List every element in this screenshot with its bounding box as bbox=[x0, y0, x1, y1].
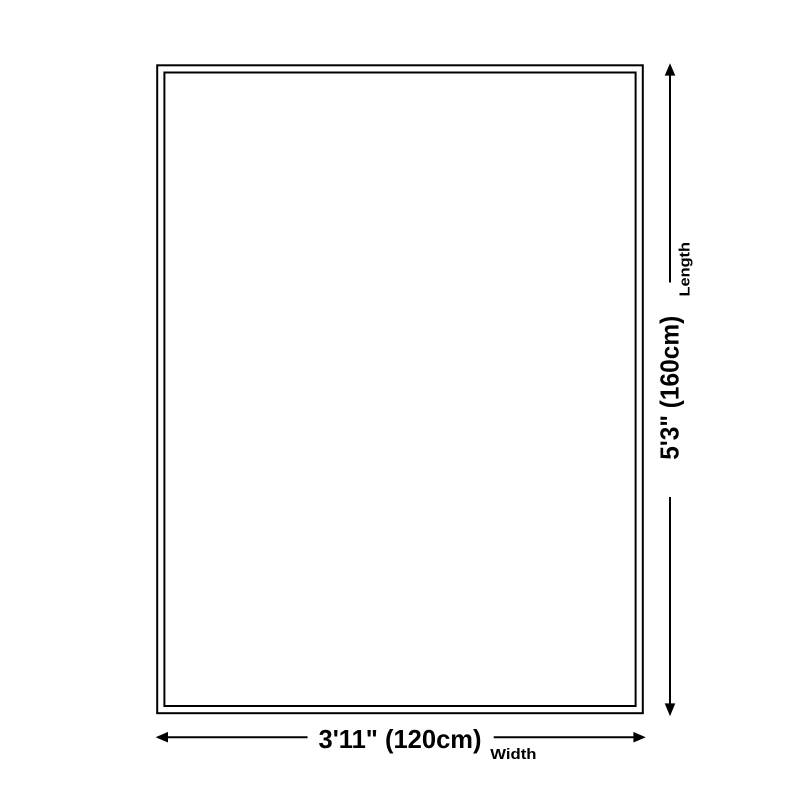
svg-text:3'11" (120cm): 3'11" (120cm) bbox=[319, 724, 482, 754]
svg-text:Width: Width bbox=[490, 746, 536, 763]
svg-text:5'3" (160cm): 5'3" (160cm) bbox=[654, 316, 684, 460]
svg-text:Length: Length bbox=[677, 242, 694, 297]
